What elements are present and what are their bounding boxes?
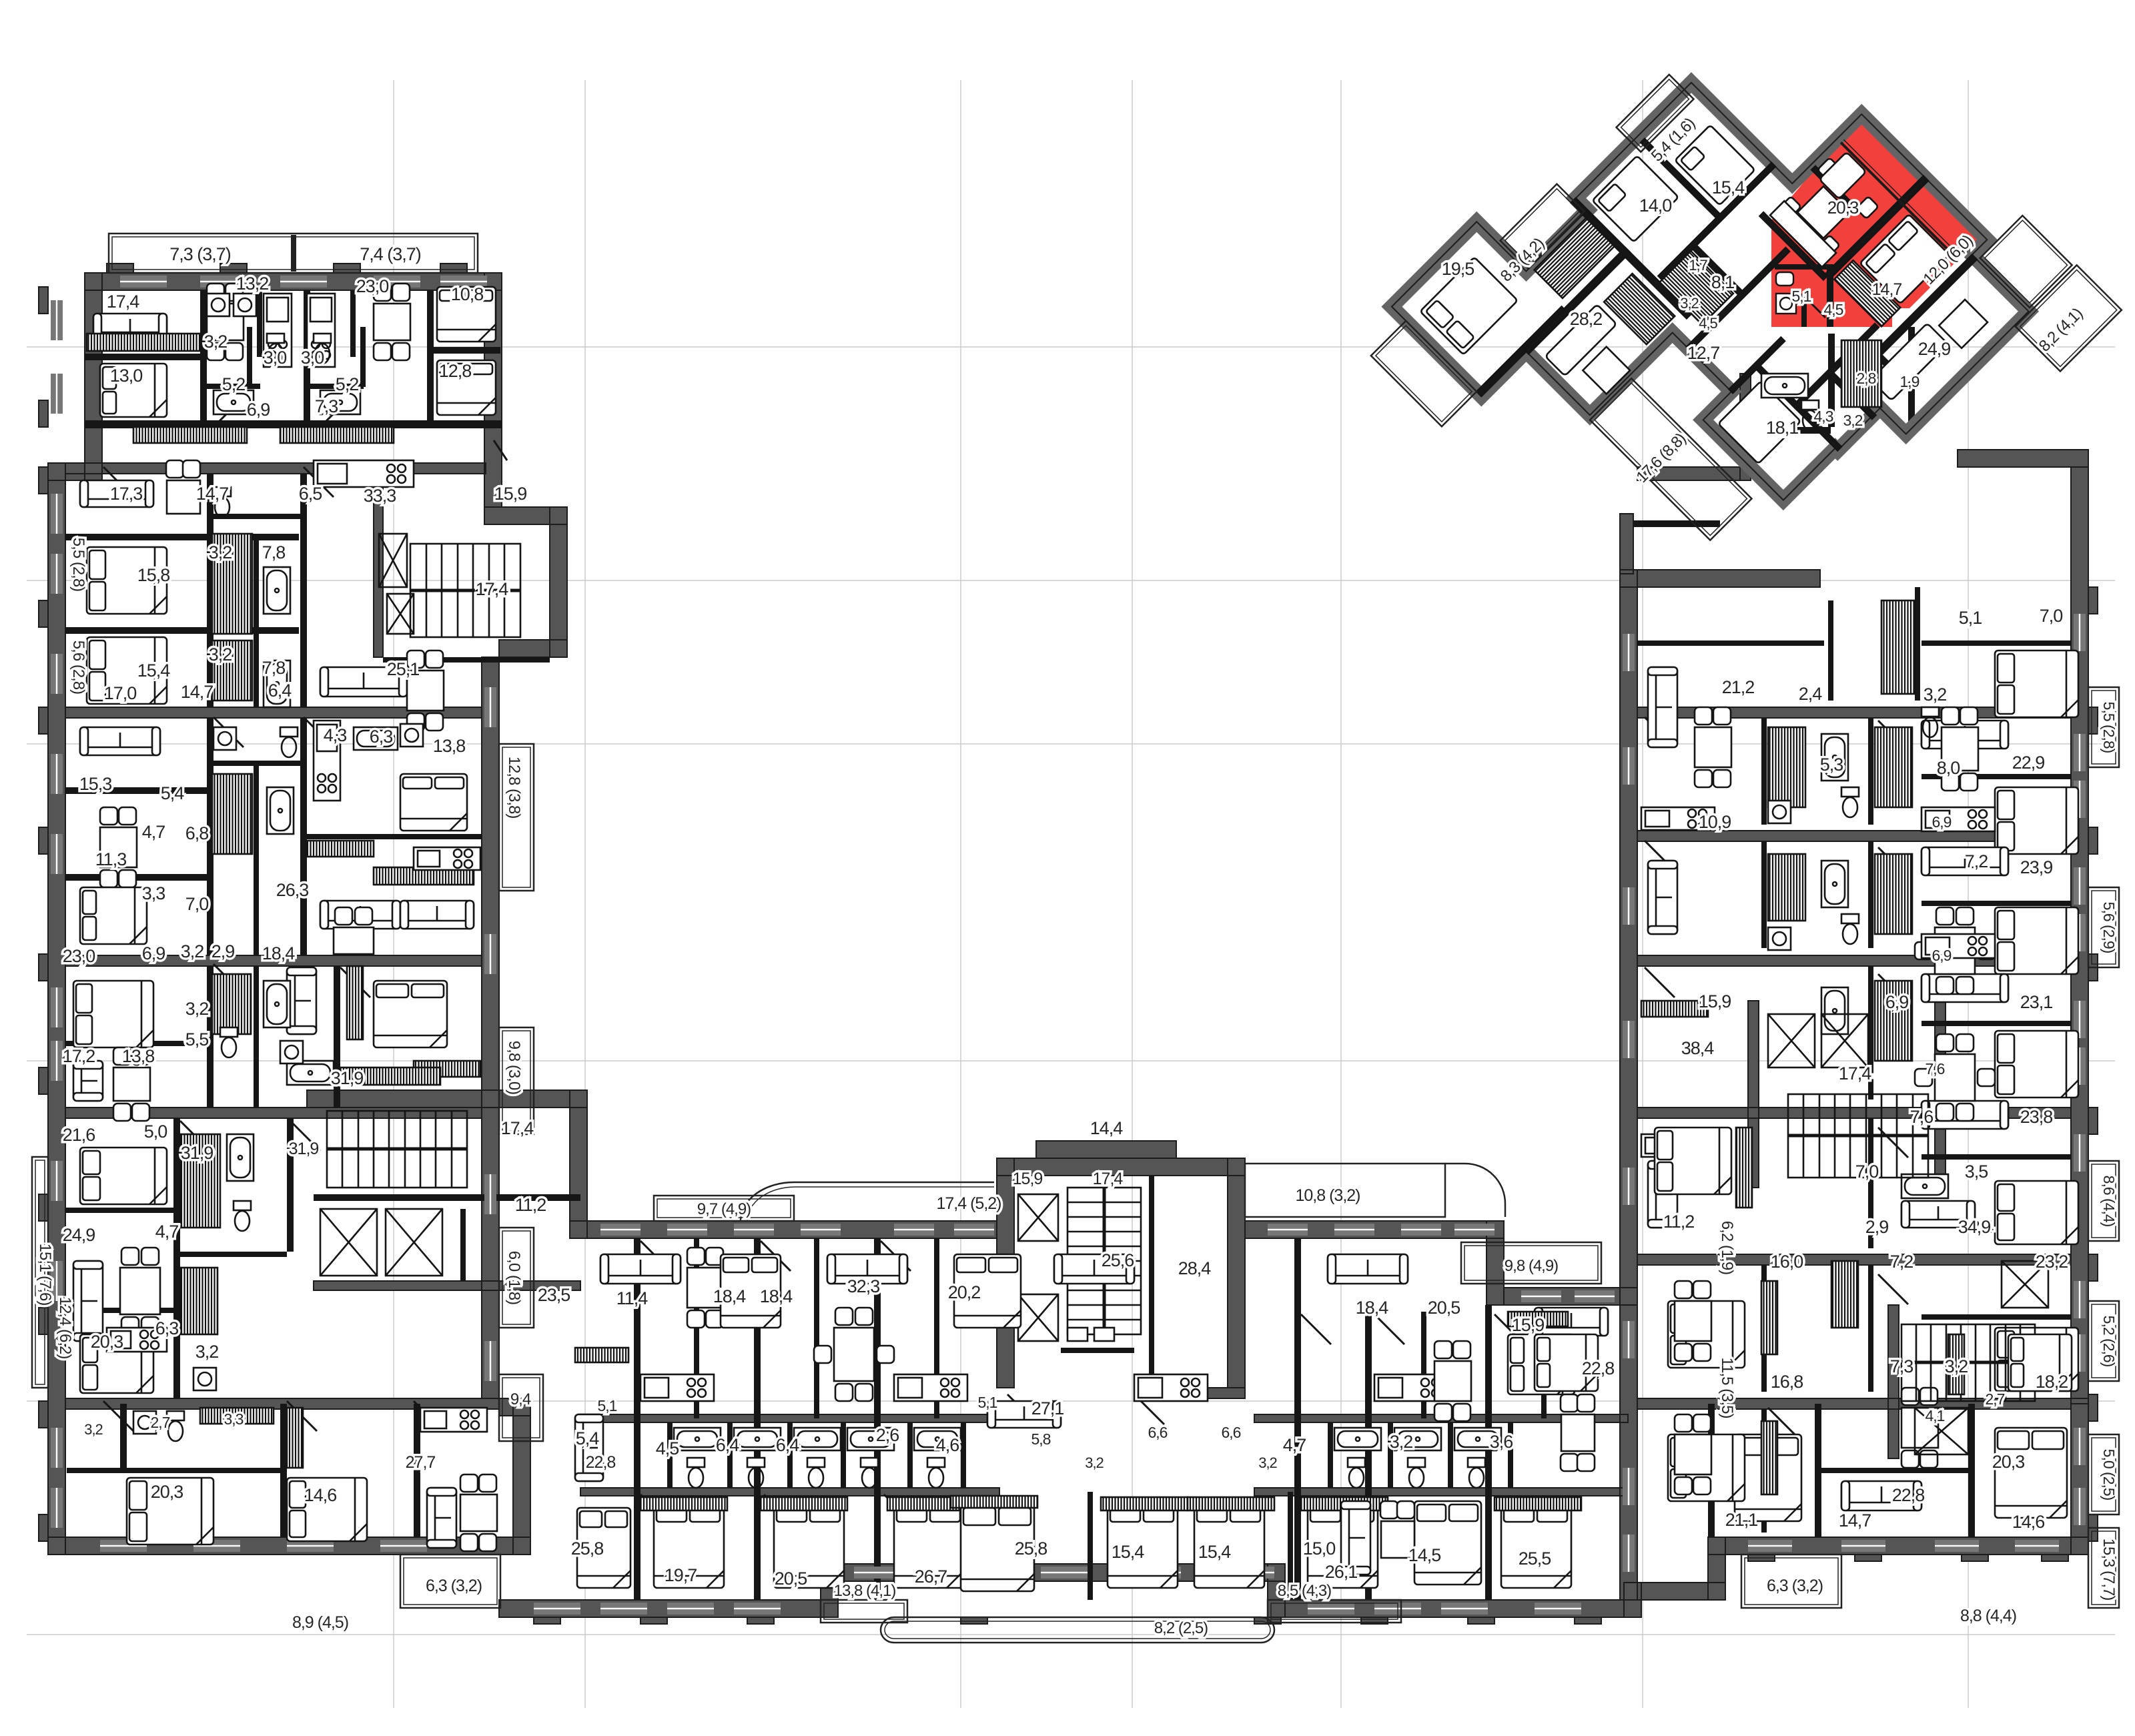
svg-text:25,1: 25,1 (387, 659, 420, 679)
svg-text:23,5: 23,5 (538, 1285, 570, 1305)
svg-text:10,9: 10,9 (1699, 812, 1731, 832)
svg-text:7,3 (3,7): 7,3 (3,7) (169, 244, 231, 264)
svg-text:21,1: 21,1 (1725, 1510, 1758, 1530)
svg-text:32,3: 32,3 (847, 1276, 880, 1296)
svg-text:1,9: 1,9 (1900, 373, 1919, 390)
svg-text:25,5: 25,5 (1519, 1549, 1551, 1569)
svg-text:6,6: 6,6 (1222, 1424, 1241, 1441)
svg-text:25,6: 25,6 (1102, 1250, 1134, 1270)
svg-text:23,8: 23,8 (2020, 1107, 2053, 1127)
svg-text:15,9: 15,9 (494, 484, 527, 504)
svg-text:6,4: 6,4 (268, 681, 292, 701)
svg-text:5,2: 5,2 (222, 374, 246, 394)
svg-text:4,3: 4,3 (324, 725, 347, 745)
svg-text:3,2: 3,2 (1258, 1454, 1277, 1471)
svg-text:7,6: 7,6 (1926, 1060, 1945, 1077)
svg-text:16,8: 16,8 (1771, 1372, 1803, 1392)
svg-text:4,5: 4,5 (656, 1438, 679, 1458)
svg-text:4,3: 4,3 (1814, 408, 1833, 425)
svg-text:8,9 (4,5): 8,9 (4,5) (292, 1613, 348, 1632)
svg-text:6,0 (1,8): 6,0 (1,8) (505, 1251, 523, 1304)
svg-text:7,8: 7,8 (262, 658, 286, 678)
svg-text:5,1: 5,1 (598, 1397, 617, 1414)
svg-text:20,3: 20,3 (1992, 1452, 2025, 1472)
svg-text:23,2: 23,2 (2036, 1252, 2068, 1272)
svg-text:12,4 (6,2): 12,4 (6,2) (56, 1297, 74, 1359)
svg-text:3,5: 3,5 (1965, 1162, 1988, 1182)
svg-text:38,4: 38,4 (1681, 1038, 1715, 1058)
svg-text:18,2: 18,2 (2036, 1372, 2068, 1392)
svg-text:20,3: 20,3 (1827, 197, 1859, 218)
svg-text:6,9: 6,9 (247, 400, 270, 420)
svg-text:20,5: 20,5 (1428, 1298, 1460, 1318)
svg-text:4,5: 4,5 (1699, 315, 1717, 332)
svg-text:14,5: 14,5 (1408, 1545, 1441, 1565)
svg-text:7,0: 7,0 (2040, 606, 2063, 626)
svg-text:14,0: 14,0 (1639, 195, 1672, 215)
svg-text:23,0: 23,0 (63, 946, 95, 966)
svg-text:18,4: 18,4 (713, 1286, 747, 1306)
svg-text:4,7: 4,7 (1283, 1435, 1306, 1455)
svg-text:5,6 (2,9): 5,6 (2,9) (2100, 902, 2118, 953)
svg-text:17,3: 17,3 (110, 484, 143, 504)
svg-text:23,9: 23,9 (2020, 857, 2053, 877)
svg-text:7,0: 7,0 (1855, 1162, 1879, 1182)
svg-text:21,6: 21,6 (63, 1125, 95, 1145)
svg-text:6,9: 6,9 (1932, 947, 1952, 964)
svg-text:3,2: 3,2 (1843, 412, 1863, 429)
svg-text:3,3: 3,3 (142, 883, 165, 903)
svg-text:3,2: 3,2 (195, 1342, 219, 1362)
svg-text:3,2: 3,2 (1945, 1356, 1968, 1376)
svg-text:13,0: 13,0 (110, 366, 143, 386)
svg-text:3,2: 3,2 (1390, 1432, 1413, 1452)
svg-text:15,4: 15,4 (137, 661, 171, 681)
svg-text:3,0: 3,0 (301, 348, 324, 368)
svg-text:9,7 (4,9): 9,7 (4,9) (697, 1200, 751, 1218)
svg-text:7,0: 7,0 (185, 894, 209, 914)
svg-text:26,3: 26,3 (276, 880, 309, 900)
svg-text:17,4: 17,4 (501, 1118, 534, 1138)
svg-text:5,1: 5,1 (1792, 288, 1811, 305)
svg-text:7,3: 7,3 (1890, 1356, 1913, 1376)
svg-text:5,0 (2,5): 5,0 (2,5) (2100, 1449, 2118, 1500)
svg-text:26,1: 26,1 (1325, 1562, 1358, 1582)
svg-text:3,2: 3,2 (209, 644, 232, 665)
svg-text:12,8: 12,8 (439, 361, 472, 381)
svg-text:13,8: 13,8 (433, 736, 466, 756)
svg-text:19,5: 19,5 (1442, 259, 1474, 279)
svg-text:6,8: 6,8 (185, 823, 209, 843)
svg-text:28,2: 28,2 (1570, 309, 1603, 329)
svg-text:7,6: 7,6 (1910, 1107, 1934, 1127)
svg-text:14,6: 14,6 (304, 1485, 337, 1505)
svg-text:10,8 (3,2): 10,8 (3,2) (1295, 1186, 1360, 1205)
svg-text:15,3: 15,3 (79, 774, 112, 794)
svg-text:8,5 (4,3): 8,5 (4,3) (1278, 1582, 1331, 1600)
svg-text:6,4: 6,4 (716, 1435, 740, 1455)
svg-text:5,8: 5,8 (1031, 1430, 1051, 1448)
svg-text:27,7: 27,7 (406, 1453, 436, 1472)
svg-text:3,2: 3,2 (181, 941, 204, 961)
svg-text:15,4: 15,4 (1712, 177, 1745, 197)
svg-text:11,3: 11,3 (95, 849, 127, 869)
svg-text:2,9: 2,9 (211, 941, 235, 961)
svg-text:24,9: 24,9 (63, 1225, 95, 1245)
svg-text:15,8: 15,8 (137, 565, 170, 585)
svg-text:15,0: 15,0 (1303, 1539, 1336, 1559)
svg-text:14,4: 14,4 (1090, 1118, 1124, 1138)
svg-text:14,6: 14,6 (2012, 1512, 2045, 1532)
svg-text:3,2: 3,2 (185, 999, 209, 1019)
svg-text:17,4: 17,4 (107, 292, 140, 312)
svg-text:6,5: 6,5 (299, 484, 322, 504)
svg-text:8,8 (4,4): 8,8 (4,4) (1960, 1607, 2016, 1625)
svg-text:3,2: 3,2 (84, 1421, 103, 1438)
svg-text:11,2: 11,2 (515, 1195, 546, 1215)
svg-text:20,3: 20,3 (91, 1332, 123, 1352)
svg-text:27,1: 27,1 (1031, 1398, 1064, 1418)
svg-text:17,0: 17,0 (104, 683, 137, 703)
svg-text:5,0: 5,0 (144, 1122, 167, 1142)
svg-text:6,9: 6,9 (1932, 813, 1952, 831)
svg-text:22,8: 22,8 (1892, 1485, 1925, 1505)
svg-text:17,4: 17,4 (1839, 1063, 1872, 1083)
svg-text:5,2: 5,2 (336, 374, 359, 394)
svg-text:15,9: 15,9 (1512, 1315, 1545, 1335)
svg-text:23,0: 23,0 (356, 276, 389, 296)
svg-text:22,8: 22,8 (586, 1453, 616, 1472)
svg-text:8,6 (4,4): 8,6 (4,4) (2100, 1176, 2118, 1227)
svg-text:18,4: 18,4 (760, 1286, 793, 1306)
svg-text:22,9: 22,9 (2012, 753, 2045, 773)
svg-text:6,4: 6,4 (776, 1435, 800, 1455)
svg-text:5,3: 5,3 (1820, 755, 1843, 775)
svg-text:15,3 (7,7): 15,3 (7,7) (2100, 1539, 2118, 1601)
svg-text:7,2: 7,2 (1890, 1252, 1913, 1272)
svg-text:34,9: 34,9 (1958, 1217, 1991, 1237)
svg-text:11,5 (3,5): 11,5 (3,5) (1718, 1358, 1736, 1418)
svg-text:5,5 (2,8): 5,5 (2,8) (69, 538, 87, 591)
svg-text:1,7: 1,7 (1689, 257, 1707, 274)
svg-text:17,4: 17,4 (476, 579, 509, 599)
svg-text:6,6: 6,6 (1148, 1424, 1168, 1441)
svg-text:31,9: 31,9 (181, 1143, 213, 1163)
svg-text:13,8 (4,1): 13,8 (4,1) (834, 1582, 896, 1600)
svg-text:4,7: 4,7 (142, 822, 165, 842)
svg-text:10,8: 10,8 (451, 284, 484, 304)
svg-text:14,7: 14,7 (196, 484, 229, 504)
svg-text:6,9: 6,9 (142, 943, 165, 963)
svg-text:9,8 (3,0): 9,8 (3,0) (505, 1041, 523, 1094)
svg-text:22,8: 22,8 (1582, 1358, 1615, 1378)
svg-text:19,7: 19,7 (665, 1565, 697, 1585)
svg-text:8,1: 8,1 (1711, 272, 1735, 292)
svg-text:6,3 (3,2): 6,3 (3,2) (426, 1577, 482, 1595)
svg-text:18,4: 18,4 (1356, 1298, 1389, 1318)
svg-text:33,3: 33,3 (364, 486, 396, 506)
svg-text:31,9: 31,9 (289, 1140, 319, 1158)
svg-text:5,5 (2,8): 5,5 (2,8) (2100, 702, 2118, 753)
svg-text:7,8: 7,8 (262, 542, 286, 562)
svg-text:2,6: 2,6 (876, 1425, 899, 1445)
svg-text:4,1: 4,1 (1926, 1407, 1945, 1424)
svg-text:15,1 (7,6): 15,1 (7,6) (36, 1244, 54, 1306)
svg-text:2,8: 2,8 (1857, 370, 1876, 387)
svg-text:17,2: 17,2 (63, 1046, 95, 1066)
svg-text:7,4 (3,7): 7,4 (3,7) (360, 244, 421, 264)
svg-text:2,7: 2,7 (1986, 1390, 2005, 1408)
svg-text:5,5: 5,5 (185, 1029, 209, 1049)
svg-text:11,2: 11,2 (1663, 1212, 1695, 1232)
svg-text:15,9: 15,9 (1699, 991, 1731, 1011)
svg-text:2,7: 2,7 (151, 1414, 170, 1431)
svg-text:4,6: 4,6 (936, 1435, 959, 1455)
svg-text:2,4: 2,4 (1799, 684, 1823, 704)
svg-text:23,1: 23,1 (2020, 992, 2053, 1012)
svg-text:13,8: 13,8 (122, 1046, 155, 1066)
svg-text:2,9: 2,9 (1865, 1217, 1889, 1237)
svg-text:6,3 (3,2): 6,3 (3,2) (1767, 1577, 1823, 1595)
svg-text:5,4: 5,4 (576, 1428, 600, 1448)
svg-text:12,8 (3,8): 12,8 (3,8) (505, 757, 523, 819)
svg-text:25,8: 25,8 (571, 1539, 604, 1559)
svg-text:4,7: 4,7 (155, 1222, 179, 1242)
svg-text:25,8: 25,8 (1015, 1539, 1047, 1559)
svg-text:3,2: 3,2 (204, 332, 228, 352)
svg-text:5,2 (2,6): 5,2 (2,6) (2100, 1316, 2118, 1367)
svg-text:18,1: 18,1 (1766, 418, 1799, 438)
svg-text:9,8 (4,9): 9,8 (4,9) (1505, 1257, 1558, 1275)
svg-text:26,7: 26,7 (915, 1567, 947, 1587)
svg-text:3,0: 3,0 (264, 348, 287, 368)
svg-text:21,2: 21,2 (1722, 677, 1755, 697)
svg-text:7,3: 7,3 (315, 396, 338, 416)
svg-text:16,0: 16,0 (1771, 1252, 1803, 1272)
svg-text:3,2: 3,2 (1680, 295, 1699, 312)
svg-text:3,6: 3,6 (1490, 1432, 1513, 1452)
svg-text:14,7: 14,7 (1872, 280, 1902, 299)
svg-text:4,5: 4,5 (1824, 301, 1843, 318)
svg-text:20,2: 20,2 (948, 1282, 981, 1302)
svg-text:17,4 (5,2): 17,4 (5,2) (936, 1194, 1001, 1213)
svg-text:5,4: 5,4 (161, 783, 185, 803)
svg-text:13,2: 13,2 (236, 274, 269, 294)
svg-text:3,2: 3,2 (1924, 685, 1947, 705)
svg-text:8,2 (2,5): 8,2 (2,5) (1154, 1619, 1208, 1637)
svg-text:15,4: 15,4 (1198, 1542, 1232, 1562)
svg-text:20,5: 20,5 (775, 1569, 807, 1589)
svg-text:28,4: 28,4 (1178, 1258, 1212, 1278)
svg-text:5,1: 5,1 (978, 1394, 997, 1411)
svg-text:15,4: 15,4 (1112, 1542, 1145, 1562)
svg-text:6,3: 6,3 (155, 1318, 179, 1338)
svg-text:9,4: 9,4 (510, 1390, 531, 1408)
svg-text:6,9: 6,9 (1885, 992, 1909, 1012)
svg-text:15,9: 15,9 (1013, 1170, 1043, 1188)
svg-text:14,7: 14,7 (181, 682, 213, 702)
svg-text:7,2: 7,2 (1965, 851, 1988, 871)
svg-text:18,4: 18,4 (262, 943, 296, 963)
svg-text:3,3: 3,3 (224, 1410, 244, 1428)
svg-text:11,4: 11,4 (616, 1288, 649, 1308)
svg-text:8,0: 8,0 (1937, 758, 1960, 778)
svg-text:24,9: 24,9 (1918, 339, 1951, 359)
svg-text:31,9: 31,9 (331, 1068, 364, 1088)
svg-text:5,1: 5,1 (1959, 608, 1982, 628)
svg-text:5,6 (2,8): 5,6 (2,8) (69, 640, 87, 694)
svg-text:12,7: 12,7 (1687, 343, 1720, 363)
svg-text:17,4: 17,4 (1093, 1170, 1124, 1188)
svg-text:6,3: 6,3 (370, 727, 393, 747)
svg-text:3,2: 3,2 (1085, 1454, 1104, 1471)
svg-text:14,7: 14,7 (1839, 1510, 1871, 1531)
svg-text:6,2 (1,9): 6,2 (1,9) (1718, 1221, 1736, 1274)
svg-text:20,3: 20,3 (151, 1482, 183, 1502)
svg-text:3,2: 3,2 (209, 542, 232, 562)
